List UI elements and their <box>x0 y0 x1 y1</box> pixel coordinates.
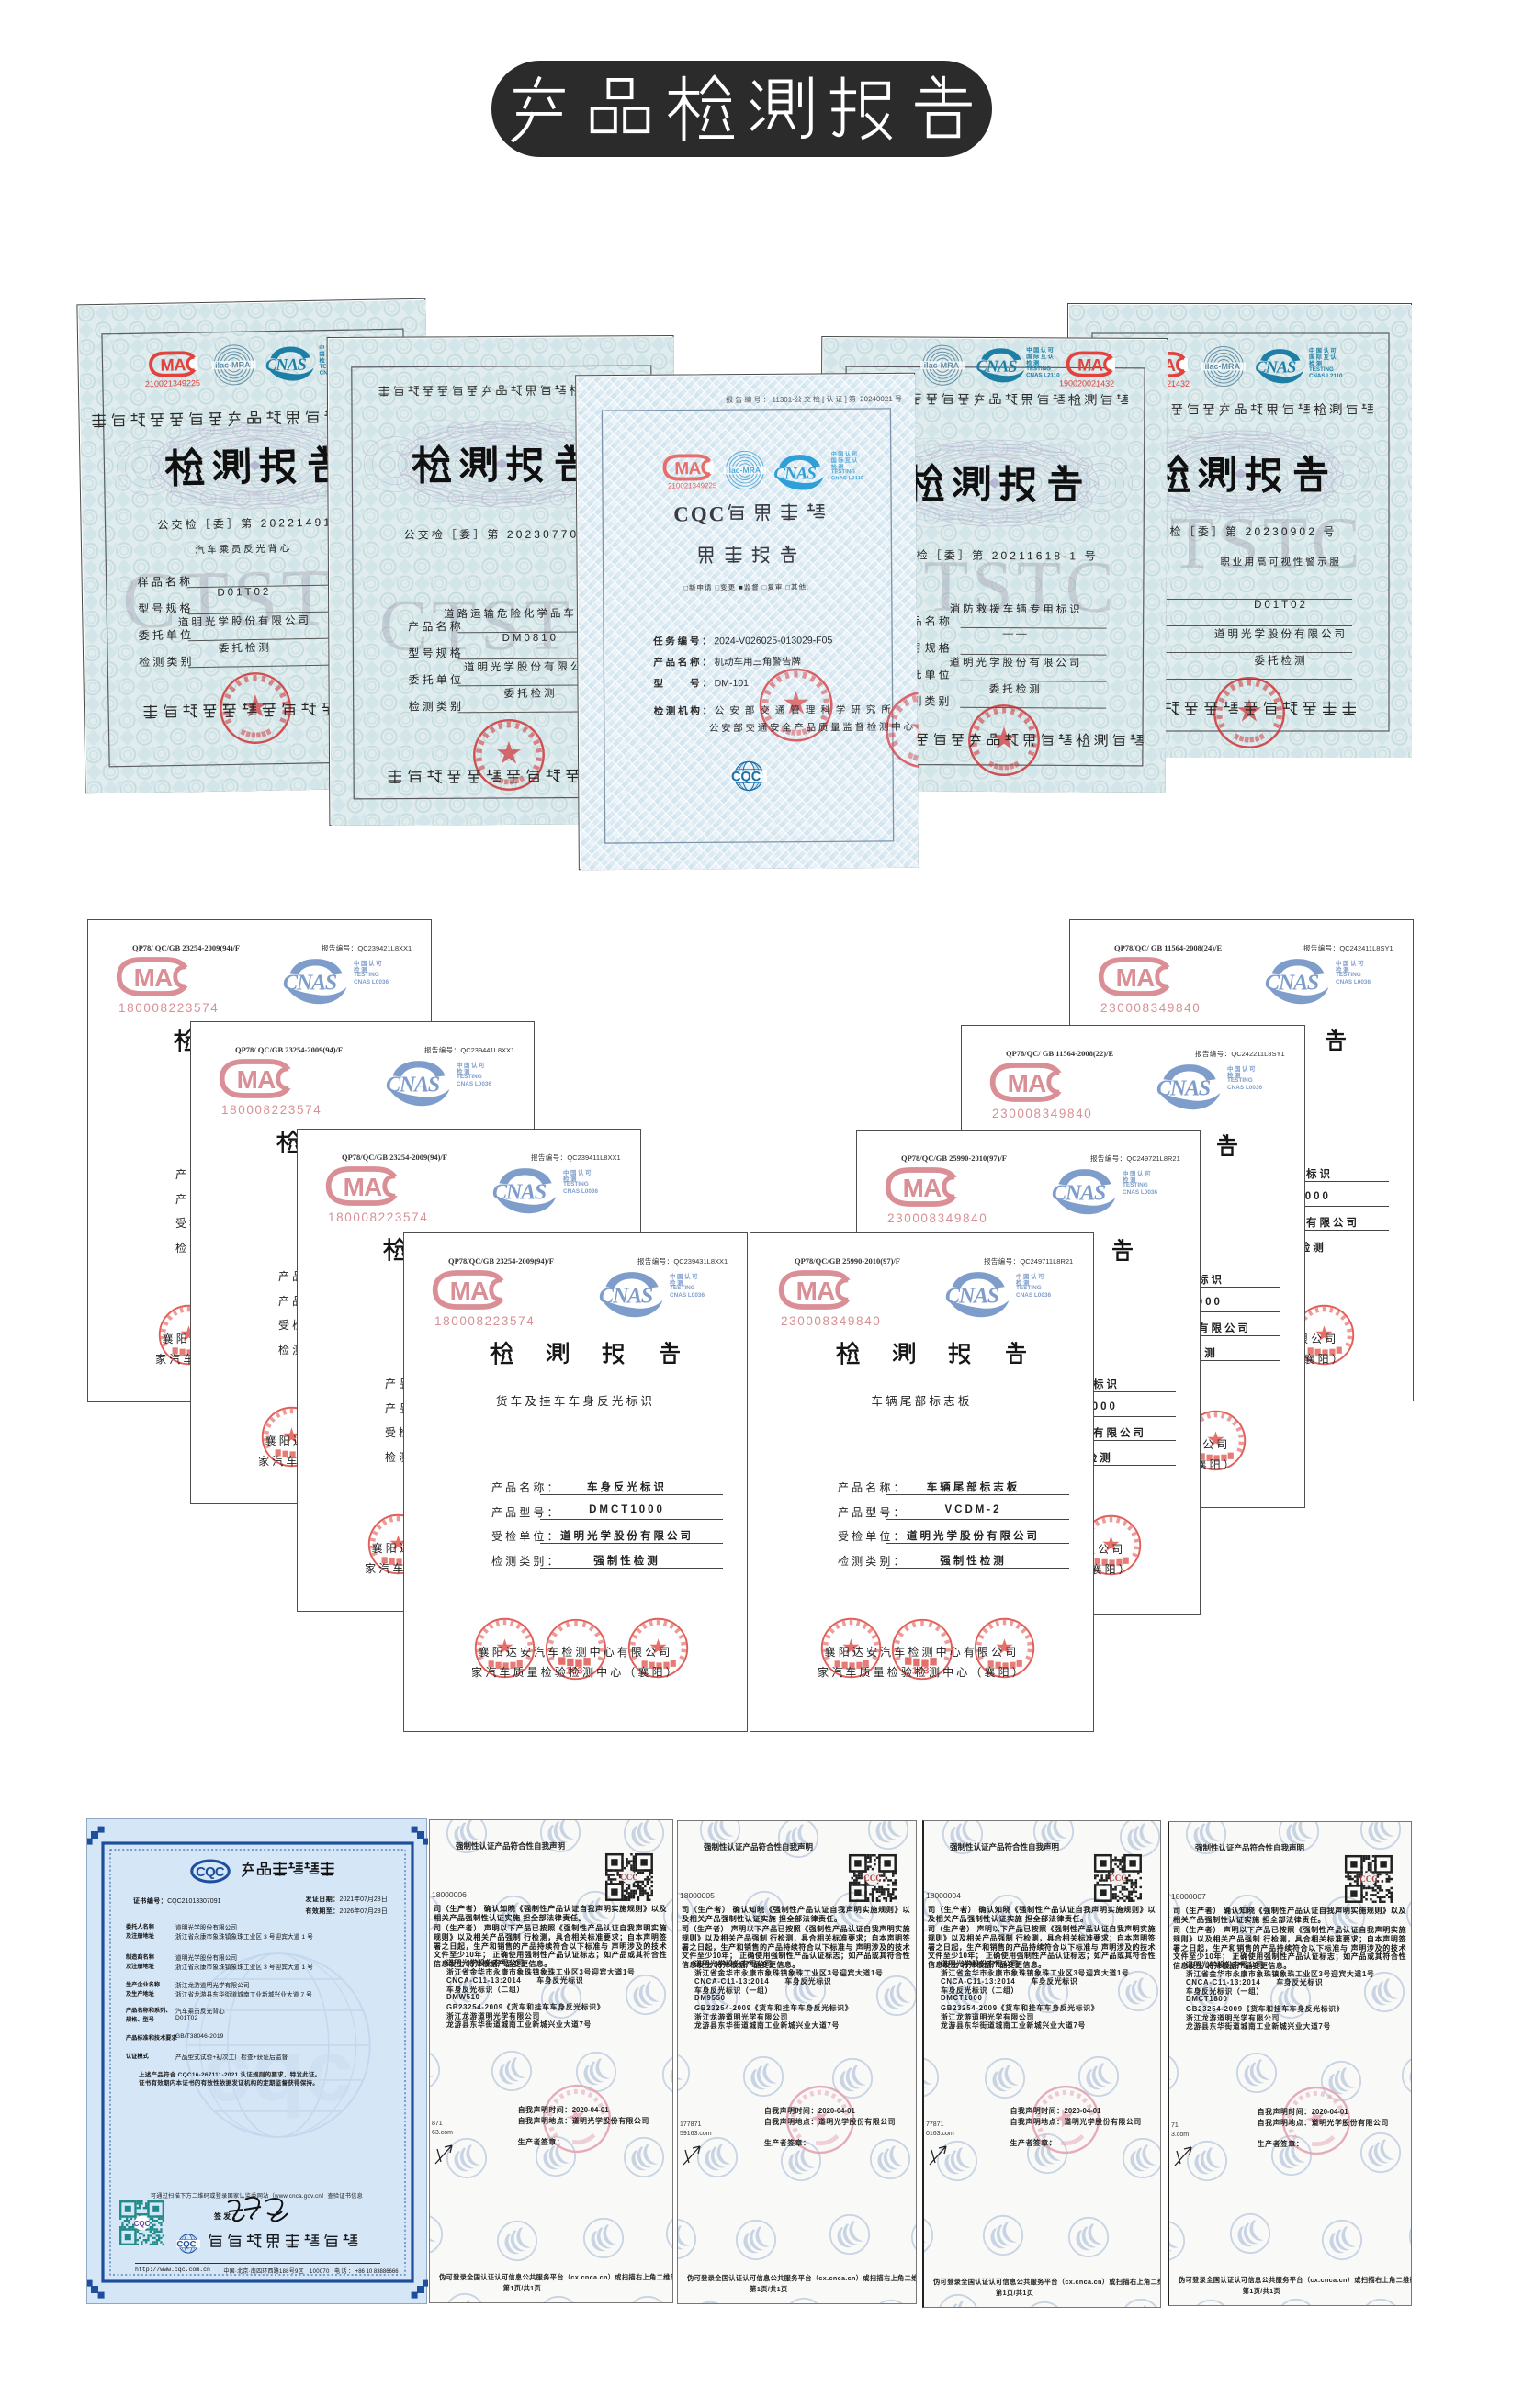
svg-text:CQC: CQC <box>673 502 726 525</box>
svg-text:CCC: CCC <box>863 1874 882 1883</box>
svg-text:CCC: CCC <box>620 1873 638 1882</box>
svg-text:CCC: CCC <box>1359 1874 1378 1884</box>
svg-text:CCC: CCC <box>1109 1874 1127 1883</box>
svg-text:CQC: CQC <box>134 2220 151 2228</box>
